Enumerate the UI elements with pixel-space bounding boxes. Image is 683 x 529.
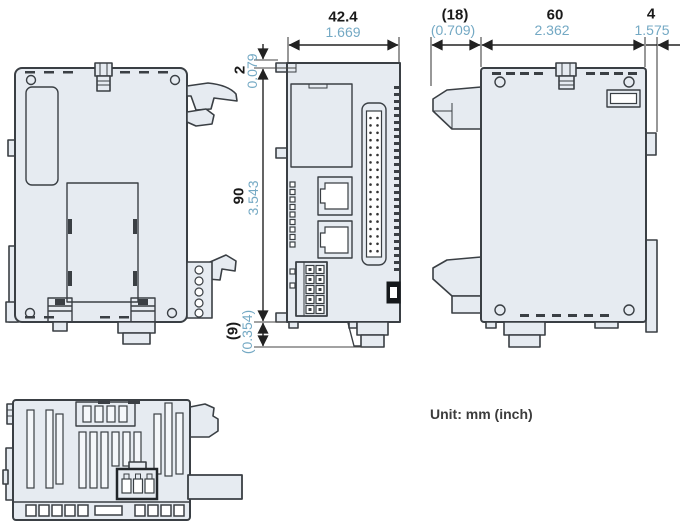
right-side-view — [433, 63, 657, 347]
dimension-drawing: 42.4 1.669 (18) (0.709) 60 2.362 4 1.575… — [0, 0, 683, 529]
dim-top-step-inch: 0.079 — [245, 53, 259, 88]
module-views-drawing — [0, 0, 683, 529]
dim-rail-clip-mm: 4 — [647, 7, 655, 22]
dim-connector-depth-mm: (18) — [442, 8, 469, 23]
dim-connector-depth-inch: (0.709) — [431, 23, 475, 37]
dim-front-width-inch: 1.669 — [325, 25, 360, 39]
bottom-view — [3, 400, 242, 520]
dim-front-width-mm: 42.4 — [328, 10, 357, 25]
dim-rail-clip-inch: 1.575 — [634, 23, 669, 37]
dim-foot-height-inch: (0.354) — [240, 310, 254, 354]
dim-body-depth-mm: 60 — [547, 8, 564, 23]
dim-body-depth-inch: 2.362 — [534, 23, 569, 37]
front-view — [276, 63, 400, 347]
left-side-view — [6, 63, 237, 344]
unit-note: Unit: mm (inch) — [430, 406, 533, 422]
dim-body-height-inch: 3.543 — [246, 180, 260, 215]
